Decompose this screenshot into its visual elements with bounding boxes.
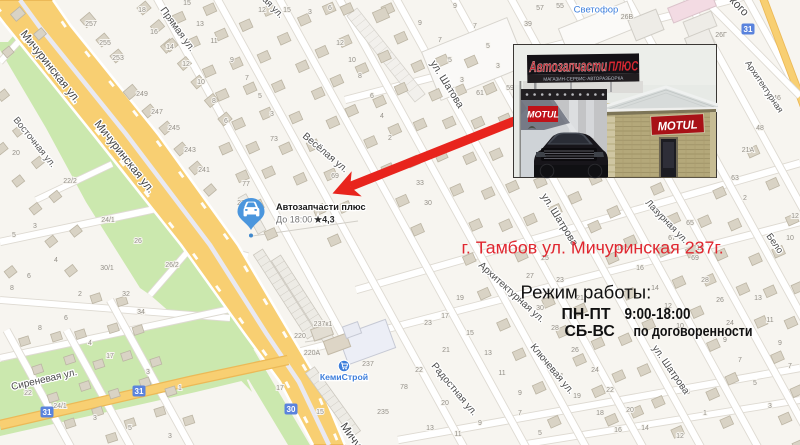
svg-text:48: 48	[756, 125, 764, 132]
svg-text:10: 10	[348, 57, 356, 64]
svg-text:7: 7	[438, 37, 442, 44]
svg-text:7: 7	[788, 363, 792, 370]
svg-text:24: 24	[591, 367, 599, 374]
svg-text:4: 4	[88, 340, 92, 347]
svg-text:77: 77	[242, 181, 250, 188]
svg-text:★4,3: ★4,3	[314, 215, 335, 225]
svg-text:28: 28	[551, 325, 559, 332]
svg-text:7: 7	[473, 23, 477, 30]
svg-text:14: 14	[651, 285, 659, 292]
svg-text:3: 3	[168, 433, 172, 440]
svg-text:78: 78	[400, 384, 408, 391]
svg-text:15: 15	[316, 409, 324, 416]
svg-text:5: 5	[128, 425, 132, 432]
svg-text:7: 7	[245, 75, 249, 82]
svg-text:СБ-ВС: СБ-ВС	[565, 323, 615, 340]
svg-text:16: 16	[150, 29, 158, 36]
svg-text:2: 2	[388, 135, 392, 142]
svg-text:220А: 220А	[304, 350, 321, 357]
svg-text:18: 18	[596, 410, 604, 417]
svg-text:3: 3	[93, 415, 97, 422]
svg-text:6: 6	[224, 118, 228, 125]
svg-text:Режим работы:: Режим работы:	[521, 282, 652, 303]
svg-text:11: 11	[210, 38, 217, 45]
svg-text:28: 28	[701, 277, 709, 284]
svg-text:21: 21	[442, 347, 450, 354]
svg-text:5: 5	[258, 93, 262, 100]
svg-text:5: 5	[12, 232, 16, 239]
svg-text:17: 17	[441, 313, 449, 320]
svg-text:24/1: 24/1	[101, 217, 115, 224]
svg-text:12: 12	[336, 40, 344, 47]
svg-text:7: 7	[518, 410, 522, 417]
svg-text:6: 6	[27, 273, 31, 280]
svg-text:7: 7	[738, 357, 742, 364]
svg-text:по договоренности: по договоренности	[634, 323, 753, 340]
svg-text:15: 15	[183, 0, 191, 7]
svg-text:КемиСтрой: КемиСтрой	[320, 372, 368, 382]
svg-text:11: 11	[766, 317, 773, 324]
svg-text:26: 26	[716, 297, 724, 304]
svg-text:257: 257	[85, 21, 97, 28]
svg-text:20: 20	[626, 407, 634, 414]
svg-text:249: 249	[136, 91, 148, 98]
svg-text:237к1: 237к1	[314, 321, 333, 328]
svg-text:31: 31	[135, 387, 144, 396]
svg-text:9: 9	[478, 420, 482, 427]
svg-text:17: 17	[106, 353, 114, 360]
svg-text:5: 5	[448, 57, 452, 64]
svg-text:4: 4	[380, 113, 384, 120]
svg-text:6: 6	[370, 93, 374, 100]
svg-text:ПН-ПТ: ПН-ПТ	[562, 306, 611, 323]
svg-text:1: 1	[703, 410, 707, 417]
svg-text:19: 19	[456, 295, 464, 302]
svg-text:20: 20	[12, 150, 20, 157]
svg-text:237: 237	[362, 361, 374, 368]
svg-text:220: 220	[294, 333, 306, 340]
svg-text:12: 12	[791, 213, 799, 220]
svg-text:3: 3	[768, 403, 772, 410]
svg-text:21А: 21А	[742, 147, 755, 154]
svg-text:13: 13	[426, 425, 434, 432]
svg-text:15: 15	[466, 330, 474, 337]
svg-text:16: 16	[636, 265, 644, 272]
svg-text:26Г: 26Г	[715, 32, 727, 39]
svg-text:31: 31	[43, 408, 52, 417]
svg-text:3: 3	[33, 223, 37, 230]
svg-text:30: 30	[287, 405, 296, 414]
svg-text:26: 26	[571, 347, 579, 354]
svg-text:9: 9	[418, 20, 422, 27]
svg-text:14: 14	[166, 44, 174, 51]
svg-text:23: 23	[424, 320, 432, 327]
svg-text:30/1: 30/1	[100, 265, 114, 272]
svg-text:247: 247	[151, 109, 163, 116]
svg-text:11: 11	[498, 370, 505, 377]
svg-text:26/2: 26/2	[165, 262, 179, 269]
svg-text:65: 65	[686, 220, 694, 227]
svg-text:39: 39	[524, 21, 532, 28]
svg-text:г. Тамбов ул. Мичуринская 237г: г. Тамбов ул. Мичуринская 237г.	[462, 238, 724, 258]
svg-text:22/2: 22/2	[63, 178, 77, 185]
svg-text:253: 253	[112, 55, 124, 62]
svg-text:235: 235	[377, 409, 389, 416]
svg-text:22: 22	[606, 387, 614, 394]
svg-text:59: 59	[506, 85, 514, 92]
svg-text:18: 18	[138, 7, 146, 14]
svg-text:22: 22	[415, 367, 423, 374]
svg-text:До 18:00: До 18:00	[276, 215, 312, 225]
svg-text:26В: 26В	[621, 14, 634, 21]
svg-text:31: 31	[744, 25, 753, 34]
svg-text:Автозапчасти: Автозапчасти	[528, 58, 607, 76]
svg-text:9: 9	[778, 340, 782, 347]
svg-text:3: 3	[146, 369, 150, 376]
svg-text:1: 1	[178, 385, 182, 392]
svg-text:245: 245	[168, 125, 180, 132]
svg-text:255: 255	[99, 40, 111, 47]
svg-text:12: 12	[258, 7, 266, 14]
svg-text:16: 16	[614, 427, 622, 434]
svg-text:27: 27	[526, 273, 534, 280]
svg-text:МАГАЗИН·СЕРВИС·АВТОРАЗБОРКА: МАГАЗИН·СЕРВИС·АВТОРАЗБОРКА	[543, 76, 624, 83]
svg-text:34: 34	[137, 309, 145, 316]
svg-text:11: 11	[454, 431, 461, 438]
svg-text:3: 3	[460, 77, 464, 84]
svg-text:13: 13	[484, 350, 492, 357]
svg-text:Светофор: Светофор	[574, 5, 619, 16]
svg-text:MOTUL: MOTUL	[657, 117, 698, 133]
svg-text:20: 20	[441, 400, 449, 407]
svg-text:26: 26	[134, 238, 142, 245]
svg-text:69: 69	[331, 173, 339, 180]
svg-text:30: 30	[424, 200, 432, 207]
svg-text:8: 8	[38, 325, 42, 332]
svg-text:9: 9	[230, 57, 234, 64]
svg-text:5: 5	[486, 43, 490, 50]
svg-text:5: 5	[538, 430, 542, 437]
svg-text:9:00-18:00: 9:00-18:00	[625, 306, 691, 323]
svg-text:9: 9	[453, 3, 457, 10]
svg-text:33: 33	[416, 180, 424, 187]
svg-text:2: 2	[78, 291, 82, 298]
svg-text:6: 6	[64, 315, 68, 322]
svg-text:57: 57	[536, 5, 544, 12]
svg-text:243: 243	[184, 147, 196, 154]
svg-text:3: 3	[308, 9, 312, 16]
svg-text:ПЛЮС: ПЛЮС	[608, 58, 638, 73]
svg-text:17: 17	[276, 385, 284, 392]
svg-text:8: 8	[212, 98, 216, 105]
svg-text:13: 13	[196, 21, 204, 28]
svg-text:73: 73	[270, 136, 278, 143]
svg-text:241: 241	[198, 167, 210, 174]
svg-text:9: 9	[518, 390, 522, 397]
svg-text:19: 19	[573, 393, 581, 400]
svg-text:4: 4	[54, 257, 58, 264]
svg-text:6: 6	[328, 5, 332, 12]
svg-text:Автозапчасти плюс: Автозапчасти плюс	[276, 202, 366, 212]
svg-text:10: 10	[197, 79, 205, 86]
svg-text:63: 63	[731, 175, 739, 182]
svg-text:24/1: 24/1	[53, 403, 67, 410]
svg-text:13: 13	[754, 295, 762, 302]
svg-text:32: 32	[122, 291, 130, 298]
svg-text:3: 3	[270, 111, 274, 118]
svg-text:22: 22	[24, 390, 32, 397]
svg-text:61: 61	[476, 90, 484, 97]
svg-text:12: 12	[676, 433, 684, 440]
svg-text:8: 8	[10, 285, 14, 292]
svg-text:10: 10	[786, 235, 794, 242]
svg-text:2: 2	[743, 195, 747, 202]
svg-text:5: 5	[753, 380, 757, 387]
svg-text:3: 3	[496, 63, 500, 70]
svg-text:8: 8	[358, 73, 362, 80]
svg-text:14: 14	[641, 425, 649, 432]
svg-text:12: 12	[182, 61, 190, 68]
svg-text:55: 55	[556, 3, 564, 10]
svg-text:MOTUL: MOTUL	[527, 110, 559, 120]
